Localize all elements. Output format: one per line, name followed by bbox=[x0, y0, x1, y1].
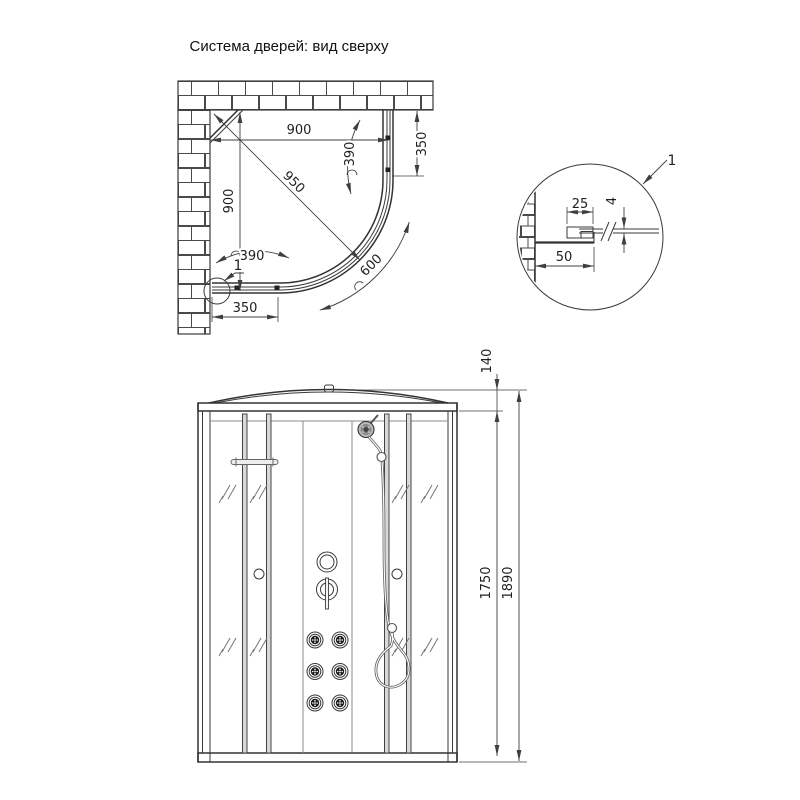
mixer-faucet bbox=[317, 552, 338, 609]
glass-hatch-marks bbox=[219, 485, 438, 656]
detail-callout-label: 1 bbox=[668, 153, 677, 169]
dim-diagonal-label: 950 bbox=[279, 168, 307, 196]
roof-dome bbox=[209, 385, 448, 403]
dim-right-panel-label: 350 bbox=[415, 132, 430, 157]
technical-drawing-page: Система дверей: вид сверху 900 bbox=[0, 0, 800, 800]
door-knob-right bbox=[392, 569, 402, 579]
detail-circle bbox=[517, 164, 663, 310]
shower-head bbox=[358, 415, 378, 438]
detail-wall bbox=[519, 168, 535, 310]
door-knob-left bbox=[254, 569, 264, 579]
massage-jet bbox=[332, 695, 348, 711]
base-tray bbox=[198, 753, 457, 762]
arc-symbol bbox=[347, 170, 357, 175]
dim-opening-arc-label: 600 bbox=[357, 251, 385, 279]
dim-depth-label: 900 bbox=[222, 189, 237, 214]
dim-profile-width-label: 25 bbox=[572, 197, 589, 212]
dim-top-width-label: 900 bbox=[287, 123, 312, 138]
detail-view: 25 4 50 1 bbox=[517, 153, 676, 310]
detail-callout-label: 1 bbox=[234, 258, 243, 274]
hose-connector bbox=[388, 624, 397, 633]
top-frame-band bbox=[198, 403, 457, 411]
massage-jet bbox=[307, 695, 323, 711]
dim-body-height-label: 1750 bbox=[479, 566, 494, 599]
massage-jets bbox=[307, 632, 348, 711]
drawing-canvas: Система дверей: вид сверху 900 bbox=[0, 0, 800, 800]
top-view: 900 900 950 390 350 390 350 600 1 bbox=[178, 81, 433, 334]
dim-glass-thickness-label: 4 bbox=[605, 197, 620, 205]
massage-jet bbox=[332, 664, 348, 680]
massage-jet bbox=[307, 664, 323, 680]
dim-bottom-panel-label: 350 bbox=[233, 301, 258, 316]
brick-wall-left bbox=[178, 110, 210, 334]
hose-holder bbox=[377, 453, 386, 462]
faucet-lever bbox=[326, 578, 329, 609]
front-view: 140 1750 1890 bbox=[198, 349, 527, 762]
dim-wall-profile-depth-label: 50 bbox=[556, 250, 573, 265]
detail-leader-line bbox=[643, 160, 667, 184]
brick-wall-top bbox=[178, 81, 433, 110]
dim-roof-height-label: 140 bbox=[480, 349, 495, 374]
massage-jet bbox=[332, 632, 348, 648]
roof-vent-knob bbox=[325, 385, 334, 392]
detail-leader-line bbox=[224, 273, 244, 281]
dim-total-height-label: 1890 bbox=[501, 566, 516, 599]
massage-jet bbox=[307, 632, 323, 648]
page-title: Система дверей: вид сверху bbox=[190, 38, 389, 55]
dim-bottom-door-arc-label: 390 bbox=[240, 249, 265, 264]
dim-right-door-arc-label: 390 bbox=[343, 142, 358, 167]
